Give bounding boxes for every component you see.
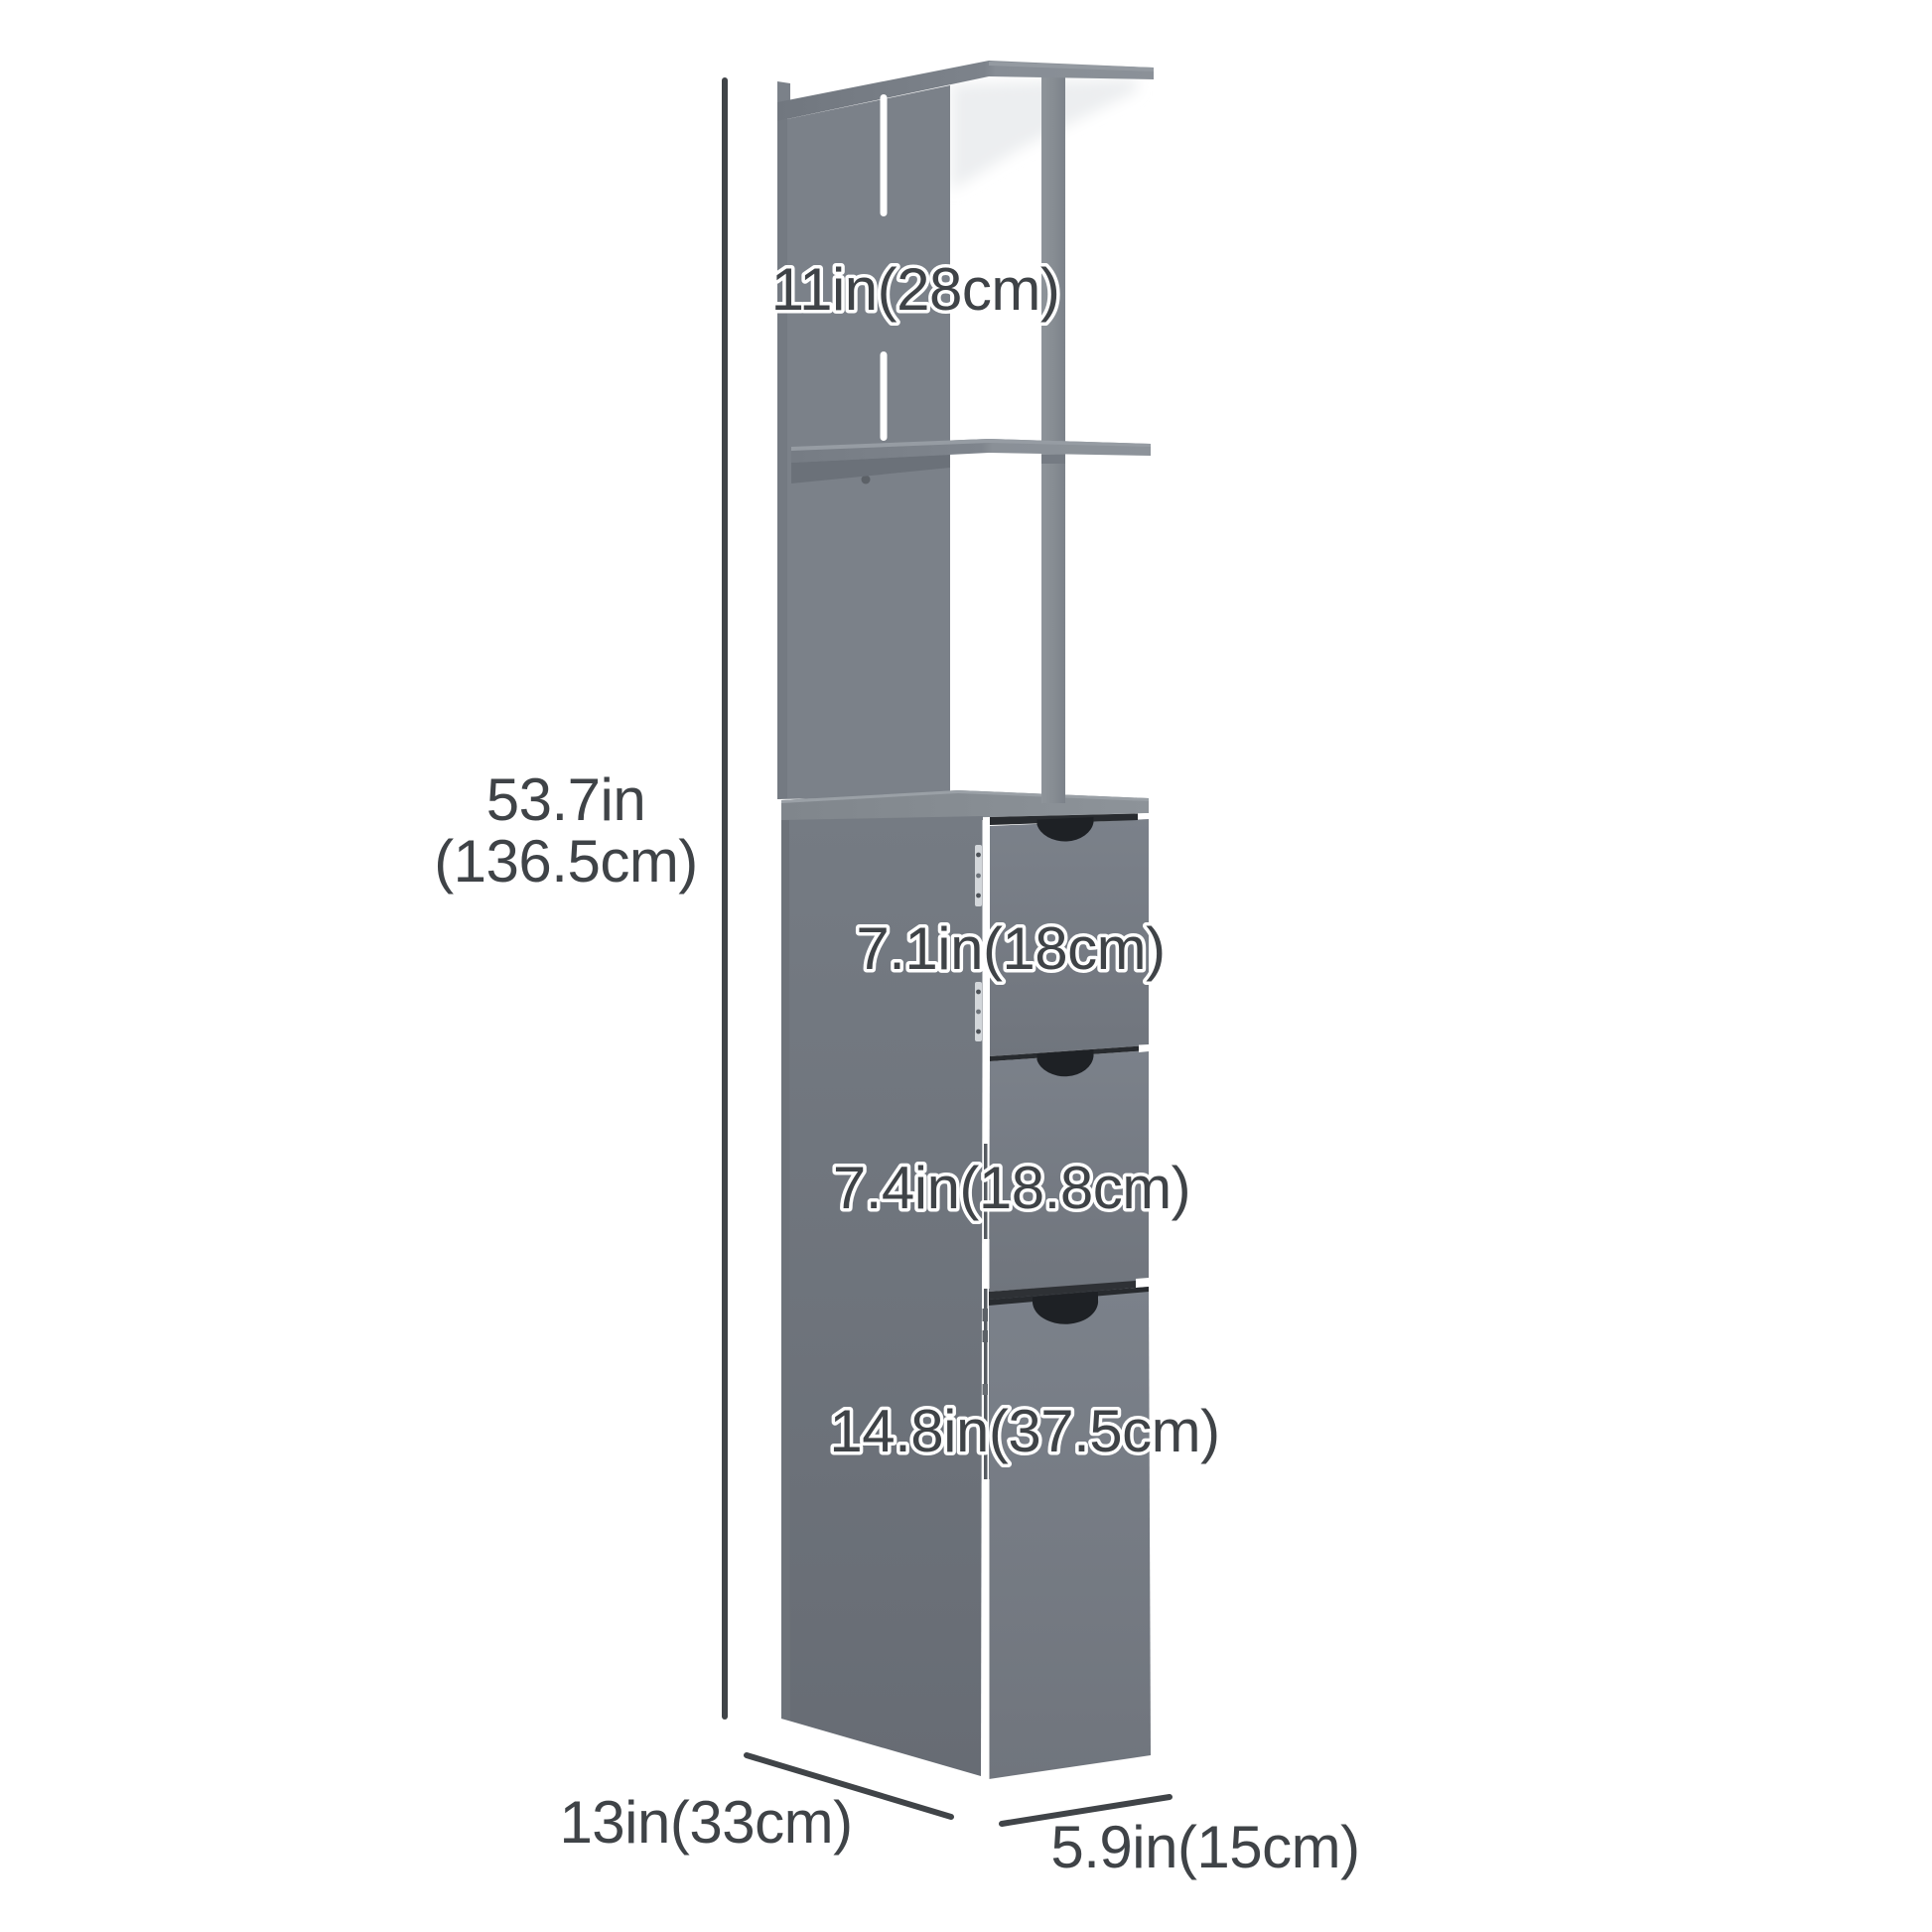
svg-text:7.4in(18.8cm): 7.4in(18.8cm) (833, 1155, 1190, 1221)
svg-text:53.7in: 53.7in (486, 766, 645, 833)
svg-text:11in(28cm): 11in(28cm) (771, 256, 1060, 323)
svg-text:(136.5cm): (136.5cm) (434, 828, 698, 895)
svg-text:7.1in(18cm): 7.1in(18cm) (856, 915, 1165, 982)
svg-text:5.9in(15cm): 5.9in(15cm) (1050, 1814, 1359, 1880)
svg-text:13in(33cm): 13in(33cm) (559, 1789, 852, 1856)
svg-text:14.8in(37.5cm): 14.8in(37.5cm) (829, 1398, 1219, 1464)
